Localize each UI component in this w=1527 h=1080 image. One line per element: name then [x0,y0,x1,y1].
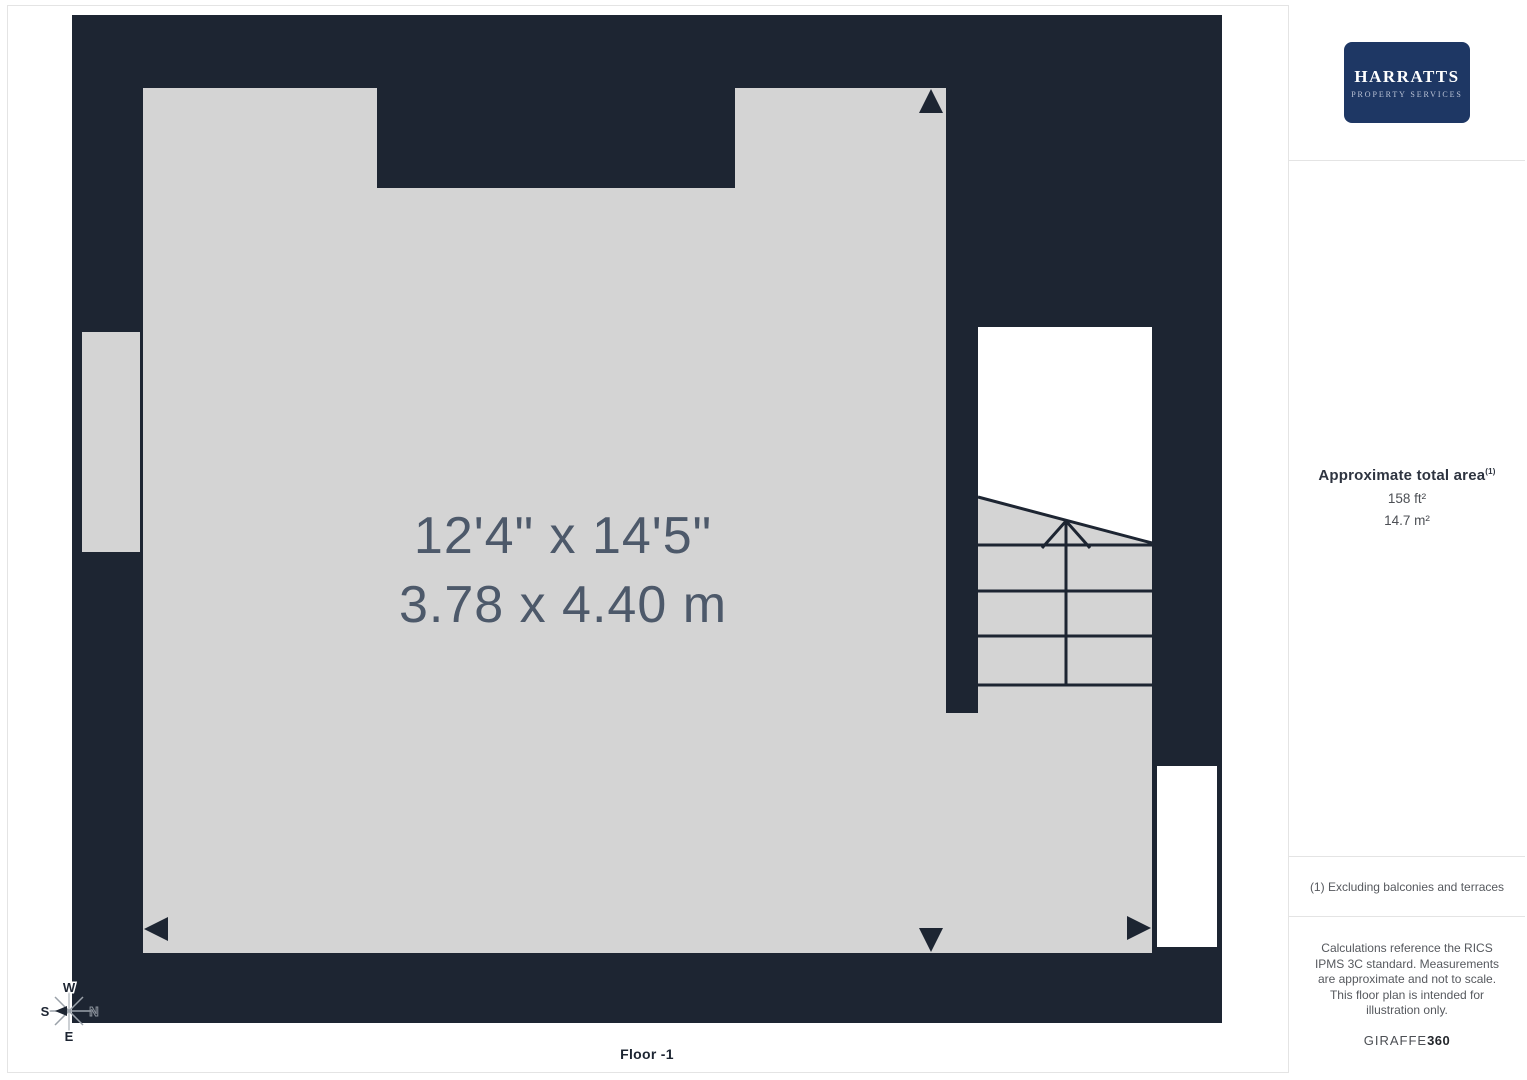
compass-needle [55,1006,67,1016]
room-floor [735,88,946,953]
compass-south-label: S [41,1004,50,1019]
staircase [978,327,1152,713]
floorplan-page: 12'4" x 14'5" 3.78 x 4.40 m W S E N Floo… [0,0,1527,1080]
area-heading-footnote-marker: (1) [1485,467,1495,476]
compass-north-label: N [89,1004,98,1019]
room-dimensions-metric: 3.78 x 4.40 m [399,576,727,634]
door-opening [1155,764,1219,949]
agency-logo-tagline: PROPERTY SERVICES [1351,90,1463,99]
room-dimensions-imperial: 12'4" x 14'5" [414,507,712,565]
wall-alcove [82,332,140,552]
footnote-text: (1) Excluding balconies and terraces [1310,880,1504,894]
footnote-section: (1) Excluding balconies and terraces [1289,857,1525,917]
logo-section: HARRATTS PROPERTY SERVICES [1289,5,1525,161]
agency-logo-name: HARRATTS [1354,67,1459,87]
compass-west-label: W [63,980,76,995]
room-floor [143,88,377,953]
area-metric-value: 14.7 m² [1384,514,1430,528]
compass-east-label: E [65,1029,74,1044]
giraffe360-brand: GIRAFFE360 [1364,1033,1451,1048]
room-floor [946,713,1152,953]
agency-logo: HARRATTS PROPERTY SERVICES [1344,42,1470,123]
area-imperial-value: 158 ft² [1388,492,1426,506]
room-floor [377,188,735,953]
sidebar: HARRATTS PROPERTY SERVICES Approximate t… [1288,5,1525,1073]
area-heading-text: Approximate total area [1318,467,1485,484]
disclaimer-section: Calculations reference the RICS IPMS 3C … [1289,917,1525,1073]
brand-name: GIRAFFE [1364,1033,1427,1048]
area-section: Approximate total area(1) 158 ft² 14.7 m… [1289,161,1525,857]
floor-label: Floor -1 [72,1046,1222,1062]
area-heading: Approximate total area(1) [1318,467,1495,484]
brand-suffix: 360 [1427,1033,1450,1048]
disclaimer-text: Calculations reference the RICS IPMS 3C … [1313,941,1501,1019]
